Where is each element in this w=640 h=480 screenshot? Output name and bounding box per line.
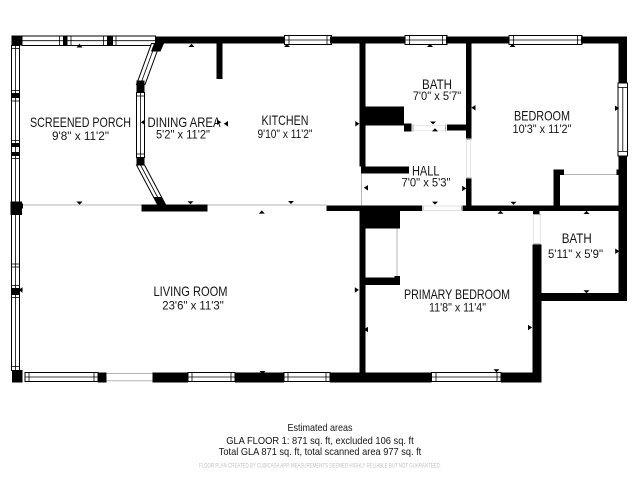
svg-text:DINING AREA: DINING AREA — [148, 114, 222, 130]
svg-text:PRIMARY BEDROOM: PRIMARY BEDROOM — [404, 286, 510, 302]
svg-text:5'11" x 5'9": 5'11" x 5'9" — [548, 249, 603, 261]
svg-text:9'10" x 11'2": 9'10" x 11'2" — [258, 129, 313, 141]
svg-text:LIVING ROOM: LIVING ROOM — [154, 283, 228, 299]
svg-text:BATH: BATH — [562, 230, 592, 246]
svg-text:7'0" x 5'7": 7'0" x 5'7" — [413, 91, 462, 103]
svg-text:7'0" x 5'3": 7'0" x 5'3" — [402, 178, 451, 190]
svg-text:HALL: HALL — [412, 163, 440, 179]
svg-text:BATH: BATH — [422, 76, 452, 92]
svg-text:Estimated areas: Estimated areas — [288, 422, 353, 434]
svg-text:BEDROOM: BEDROOM — [514, 108, 570, 124]
svg-text:23'6" x 11'3": 23'6" x 11'3" — [162, 301, 224, 313]
svg-text:FLOOR PLAN CREATED BY CUBICASA: FLOOR PLAN CREATED BY CUBICASA APP. MEAS… — [199, 463, 441, 470]
svg-text:Total GLA 871 sq. ft, total sc: Total GLA 871 sq. ft, total scanned area… — [219, 446, 422, 458]
svg-text:9'8" x 11'2": 9'8" x 11'2" — [52, 131, 109, 143]
svg-text:SCREENED PORCH: SCREENED PORCH — [30, 114, 131, 130]
svg-text:10'3" x 11'2": 10'3" x 11'2" — [513, 124, 572, 136]
svg-text:KITCHEN: KITCHEN — [262, 112, 309, 128]
svg-text:5'2" x 11'2": 5'2" x 11'2" — [156, 130, 210, 142]
svg-text:11'8" x 11'4": 11'8" x 11'4" — [429, 303, 486, 315]
